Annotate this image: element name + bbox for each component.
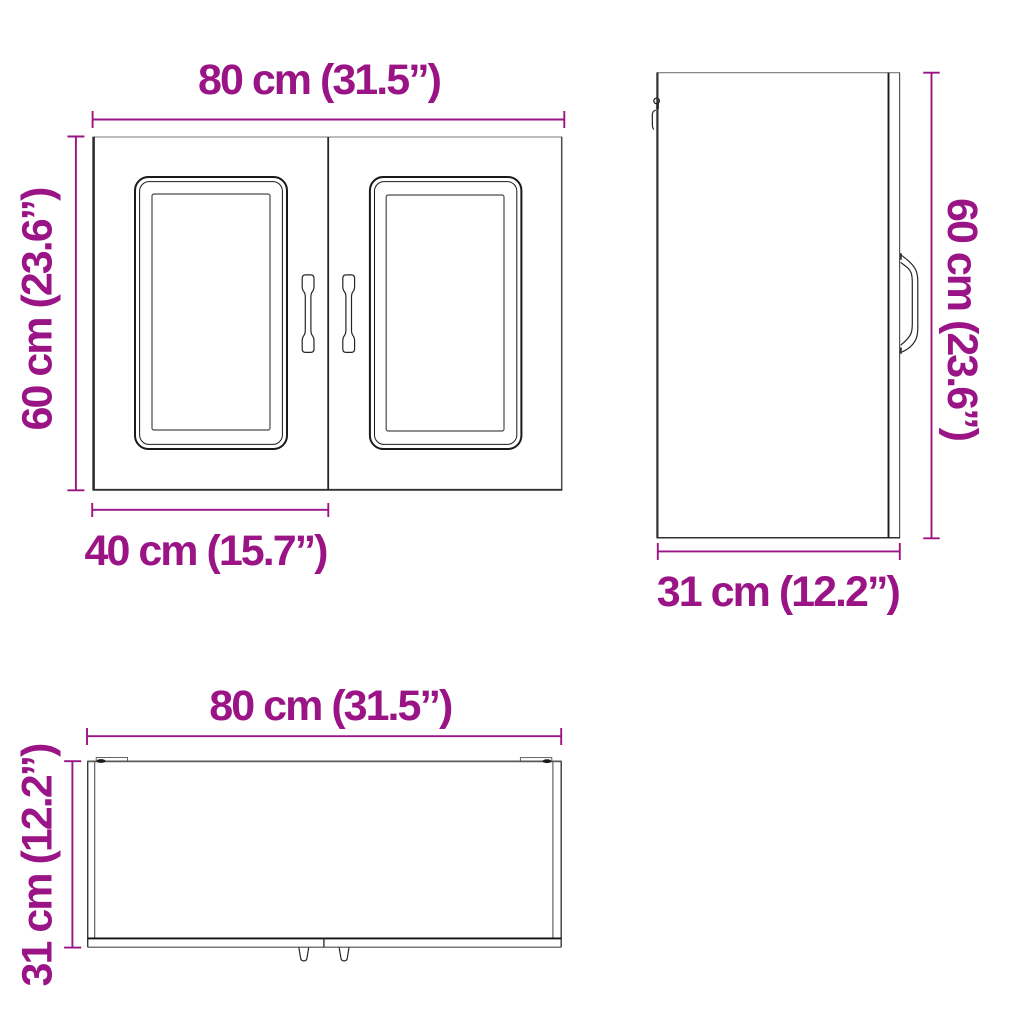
svg-text:60 cm (23.6”): 60 cm (23.6”) bbox=[938, 198, 986, 442]
svg-text:40 cm (15.7”): 40 cm (15.7”) bbox=[85, 527, 329, 575]
svg-text:80 cm (31.5”): 80 cm (31.5”) bbox=[198, 56, 442, 104]
svg-text:31 cm (12.2”): 31 cm (12.2”) bbox=[14, 743, 62, 987]
svg-text:80 cm (31.5”): 80 cm (31.5”) bbox=[209, 682, 453, 730]
svg-text:60 cm (23.6”): 60 cm (23.6”) bbox=[14, 187, 62, 431]
svg-text:31 cm (12.2”): 31 cm (12.2”) bbox=[657, 568, 901, 616]
